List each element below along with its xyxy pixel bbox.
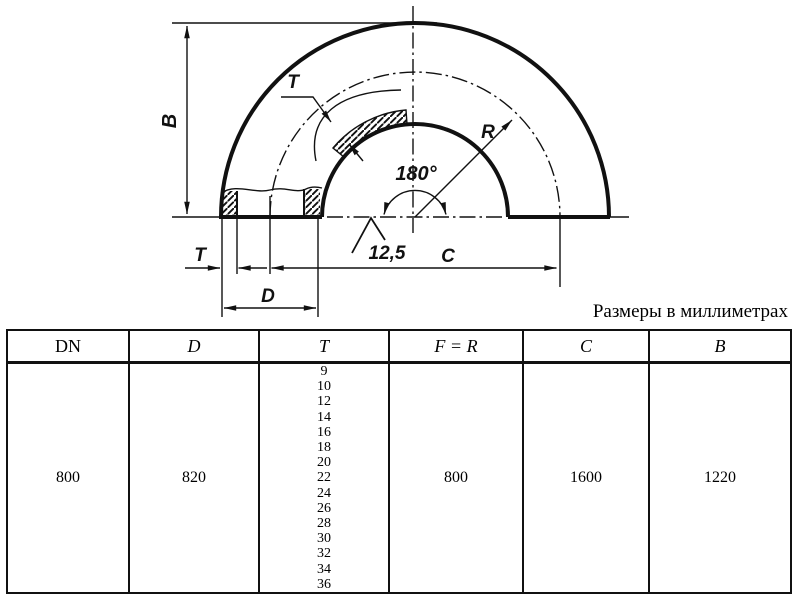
cell-d: 820 [129,363,259,594]
C-dim-label: C [441,246,455,267]
col-header-c: C [523,330,649,363]
D-dim-label: D [261,286,275,307]
units-caption: Размеры в миллиметрах [593,301,788,323]
list-value: 10 [260,379,388,394]
R-label: R [481,122,495,143]
right-wall-hatch [304,189,320,215]
wall-band-hatch [333,110,407,157]
list-value: 26 [260,501,388,516]
angle-arc [384,190,446,214]
cell-b: 1220 [649,363,791,594]
list-value: 28 [260,516,388,531]
list-value: 14 [260,410,388,425]
wall-T-label: T [287,72,300,93]
list-value: 20 [260,455,388,470]
col-header-b: B [649,330,791,363]
dimensions-table: DN D T F = R C B 800 820 910121416182022… [6,329,792,594]
list-value: 18 [260,440,388,455]
list-value: 34 [260,562,388,577]
list-value: 16 [260,425,388,440]
table-row: 800 820 91012141618202224262830323436 80… [7,363,791,594]
T-dim-label: T [194,245,207,266]
elbow-drawing: T B T C D R 180° 12,5 [0,0,800,330]
list-value: 32 [260,546,388,561]
col-header-f-r: F = R [389,330,523,363]
col-header-dn: DN [7,330,129,363]
list-value: 30 [260,531,388,546]
list-value: 36 [260,577,388,592]
cell-dn: 800 [7,363,129,594]
page: T B T C D R 180° 12,5 Размеры в миллимет… [0,0,800,600]
list-value: 12 [260,394,388,409]
col-header-d: D [129,330,259,363]
cell-f-r: 800 [389,363,523,594]
list-value: 9 [260,364,388,379]
B-dim-label: B [159,114,181,128]
col-header-t: T [259,330,389,363]
outer-arc [221,23,609,217]
list-value: 22 [260,470,388,485]
angle-label: 180° [395,163,437,185]
header-row: DN D T F = R C B [7,330,791,363]
cell-t-values: 91012141618202224262830323436 [259,363,389,594]
cell-c: 1600 [523,363,649,594]
left-wall-hatch [222,191,237,215]
roughness-value: 12,5 [369,243,406,264]
list-value: 24 [260,486,388,501]
